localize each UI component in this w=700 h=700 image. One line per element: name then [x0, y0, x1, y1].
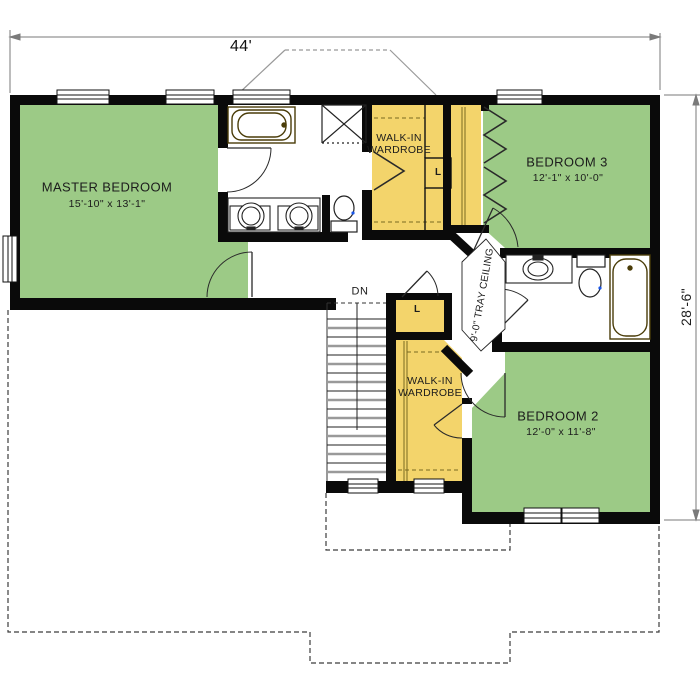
bedroom2-window — [524, 508, 599, 523]
master-window-2 — [166, 90, 214, 104]
wardrobe-top-label-line1: WALK-IN — [376, 133, 421, 144]
floor-plan: 44' 28'-6" MASTER BEDROOM 15'-10" x 13'-… — [0, 0, 700, 700]
wardrobe-bottom-label-line2: WARDROBE — [398, 388, 462, 399]
staircase — [327, 303, 386, 481]
shared-bathtub — [610, 255, 650, 339]
bedroom3-window — [497, 90, 542, 104]
overall-width-dimension: 44' — [230, 39, 252, 55]
master-bathtub — [228, 107, 295, 143]
shared-toilet — [577, 255, 605, 297]
bedroom-3-size: 12'-1" x 10'-0" — [533, 173, 604, 184]
bedroom-2-size: 12'-0" x 11'-8" — [526, 427, 596, 438]
linen-label-bottom: L — [414, 305, 420, 315]
bath-window — [233, 90, 290, 104]
shower — [322, 105, 366, 143]
master-side-window — [3, 236, 17, 282]
linen-label-top: L — [435, 168, 441, 178]
master-toilet — [331, 196, 357, 232]
stairs-down-label: DN — [352, 287, 369, 298]
roof-outline — [237, 50, 436, 95]
bedroom-2-label: BEDROOM 2 — [517, 410, 599, 423]
overall-depth-dimension: 28'-6" — [679, 288, 693, 326]
master-bedroom-size: 15'-10" x 13'-1" — [69, 199, 146, 210]
bedroom3-closet-area — [451, 105, 481, 225]
bedroom-3-label: BEDROOM 3 — [526, 156, 608, 169]
double-vanity — [228, 198, 320, 232]
floor-plan-drawing — [0, 0, 700, 700]
walk-in-wardrobe-top-area — [372, 105, 443, 230]
wardrobe-bottom-label-line1: WALK-IN — [407, 376, 452, 387]
shared-sink — [506, 255, 572, 283]
master-window-1 — [57, 90, 109, 104]
wardrobe-top-label-line2: WARDROBE — [367, 145, 431, 156]
stair-hall-window-1 — [348, 479, 378, 493]
stair-hall-window-2 — [414, 479, 444, 493]
master-bedroom-label: MASTER BEDROOM — [42, 181, 173, 194]
